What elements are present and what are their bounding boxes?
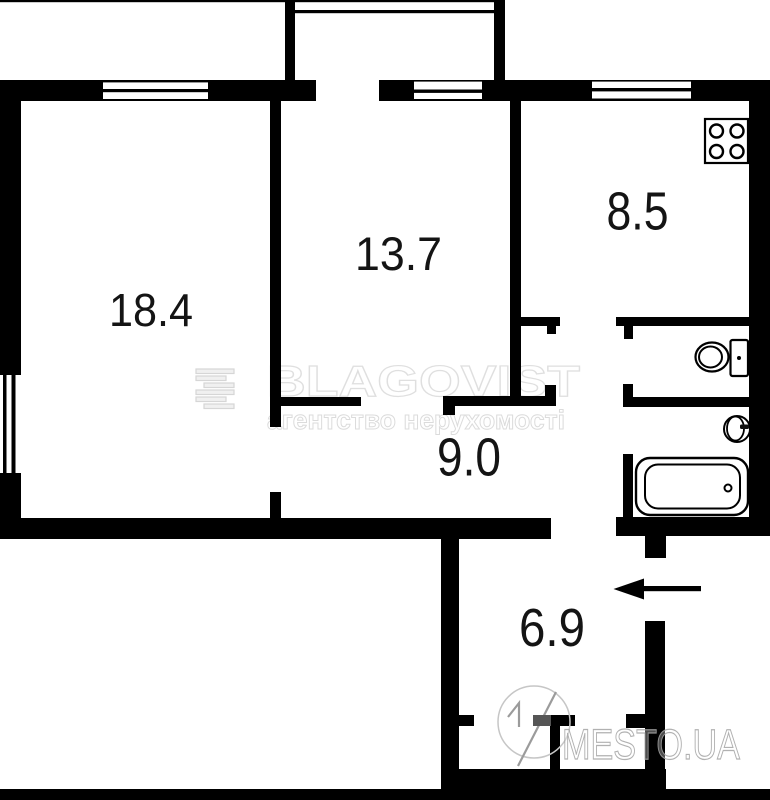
svg-text:18.4: 18.4 bbox=[109, 284, 193, 336]
svg-text:9.0: 9.0 bbox=[437, 429, 501, 488]
svg-text:MESTO.UA: MESTO.UA bbox=[562, 721, 740, 769]
svg-text:6.9: 6.9 bbox=[519, 599, 585, 658]
svg-text:агентство нерухомості: агентство нерухомості bbox=[267, 405, 565, 435]
svg-text:8.5: 8.5 bbox=[607, 183, 669, 242]
svg-text:13.7: 13.7 bbox=[355, 227, 442, 280]
